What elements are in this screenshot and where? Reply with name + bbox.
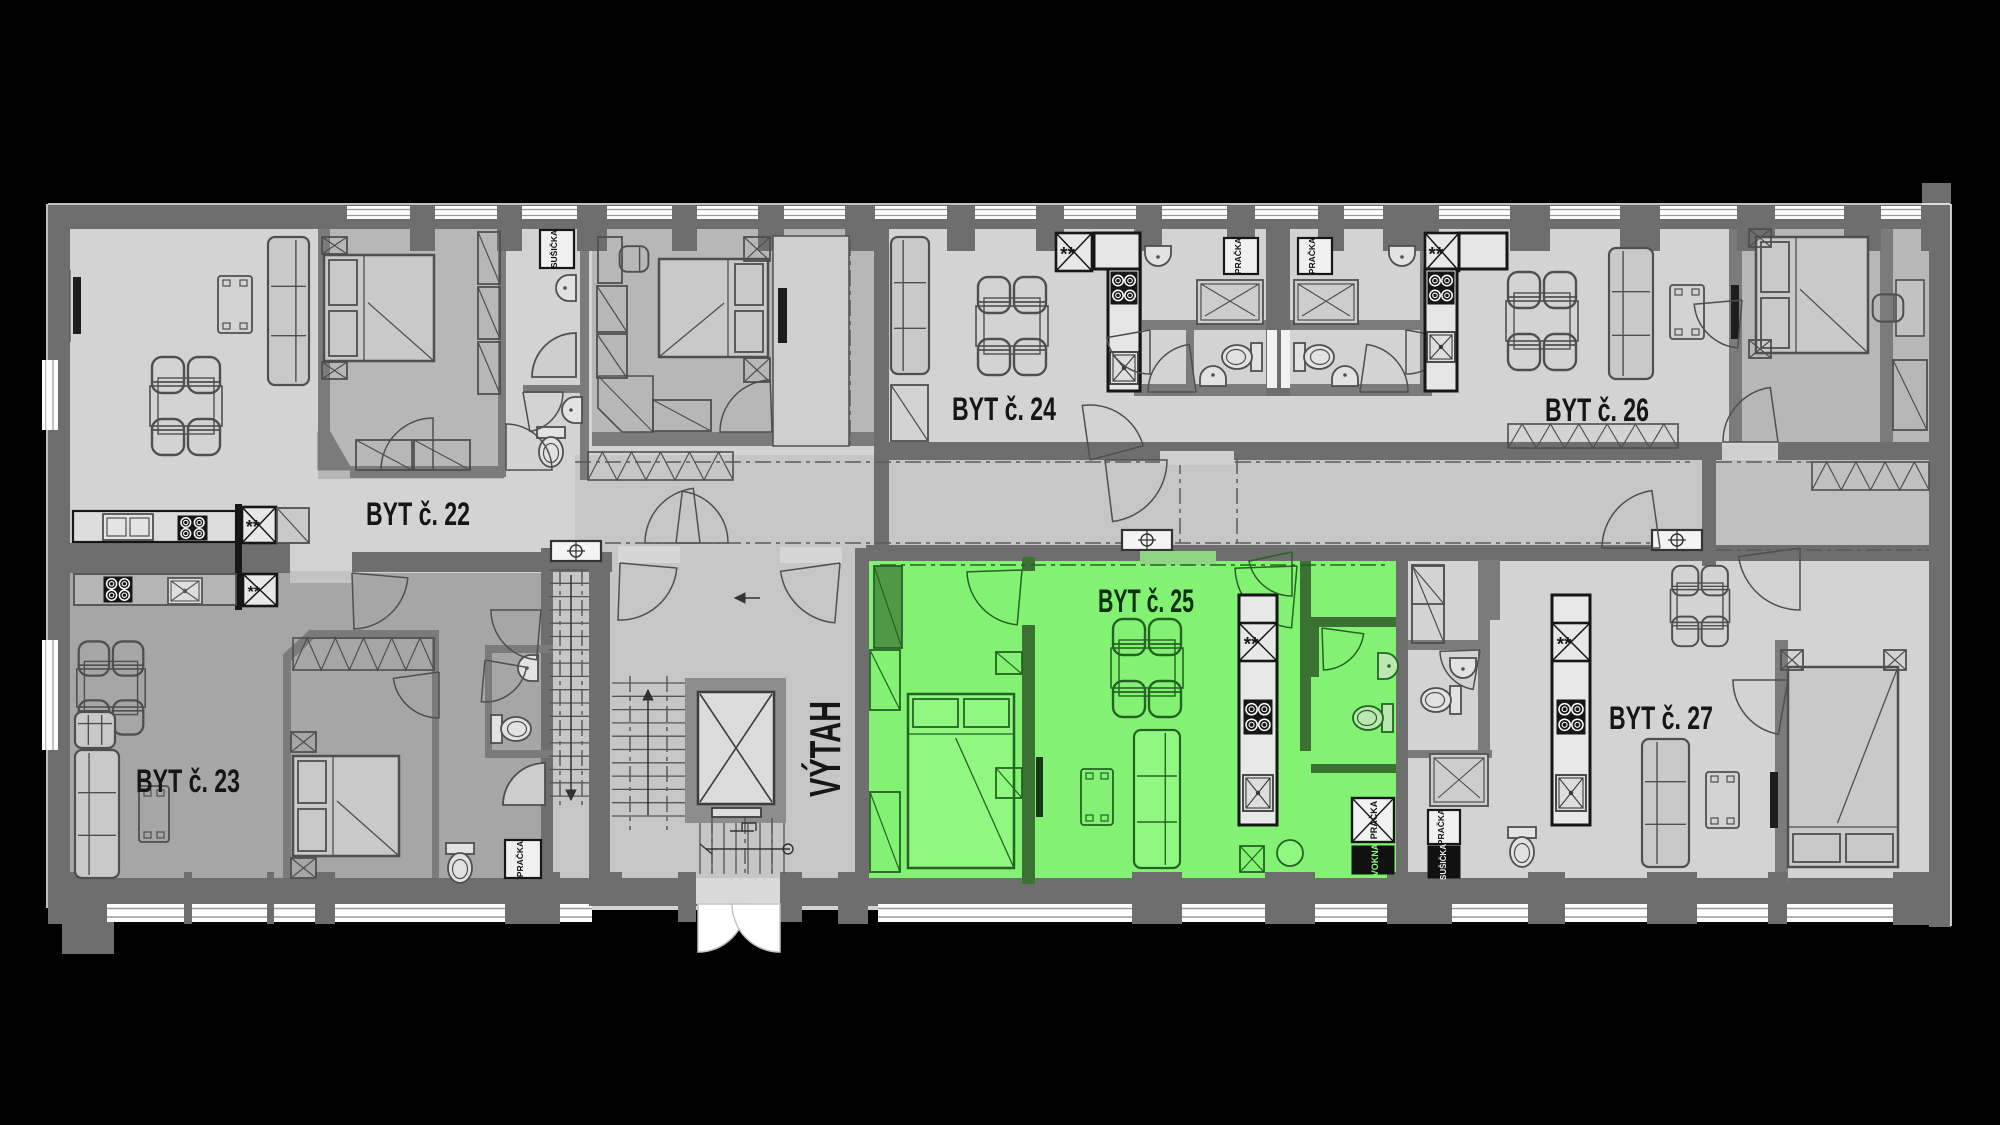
svg-text:BYT č. 25: BYT č. 25 [1098, 583, 1194, 619]
svg-text:VOKNA: VOKNA [1370, 843, 1380, 876]
svg-text:PRAČKA: PRAČKA [1368, 800, 1379, 839]
svg-text:**: ** [1244, 634, 1259, 655]
svg-text:PRAČKA: PRAČKA [1435, 809, 1446, 845]
svg-text:BYT č. 22: BYT č. 22 [366, 496, 470, 532]
svg-text:PRAČKA: PRAČKA [1232, 238, 1243, 274]
svg-text:BYT č. 26: BYT č. 26 [1545, 392, 1649, 428]
svg-text:BYT č. 27: BYT č. 27 [1609, 700, 1713, 736]
svg-text:PRAČKA: PRAČKA [514, 841, 525, 877]
svg-text:BYT č. 23: BYT č. 23 [136, 763, 240, 799]
svg-text:VÝTAH: VÝTAH [800, 701, 850, 797]
svg-text:**: ** [246, 517, 260, 537]
svg-text:**: ** [1428, 244, 1443, 265]
svg-text:**: ** [1060, 244, 1075, 265]
svg-text:PRAČKA: PRAČKA [1306, 238, 1317, 274]
svg-text:**: ** [248, 584, 261, 601]
svg-text:SUŠIČKA: SUŠIČKA [1439, 844, 1448, 880]
svg-text:BYT č. 24: BYT č. 24 [952, 391, 1056, 427]
svg-text:**: ** [1557, 634, 1572, 655]
svg-text:SUŠIČKA: SUŠIČKA [548, 230, 559, 268]
